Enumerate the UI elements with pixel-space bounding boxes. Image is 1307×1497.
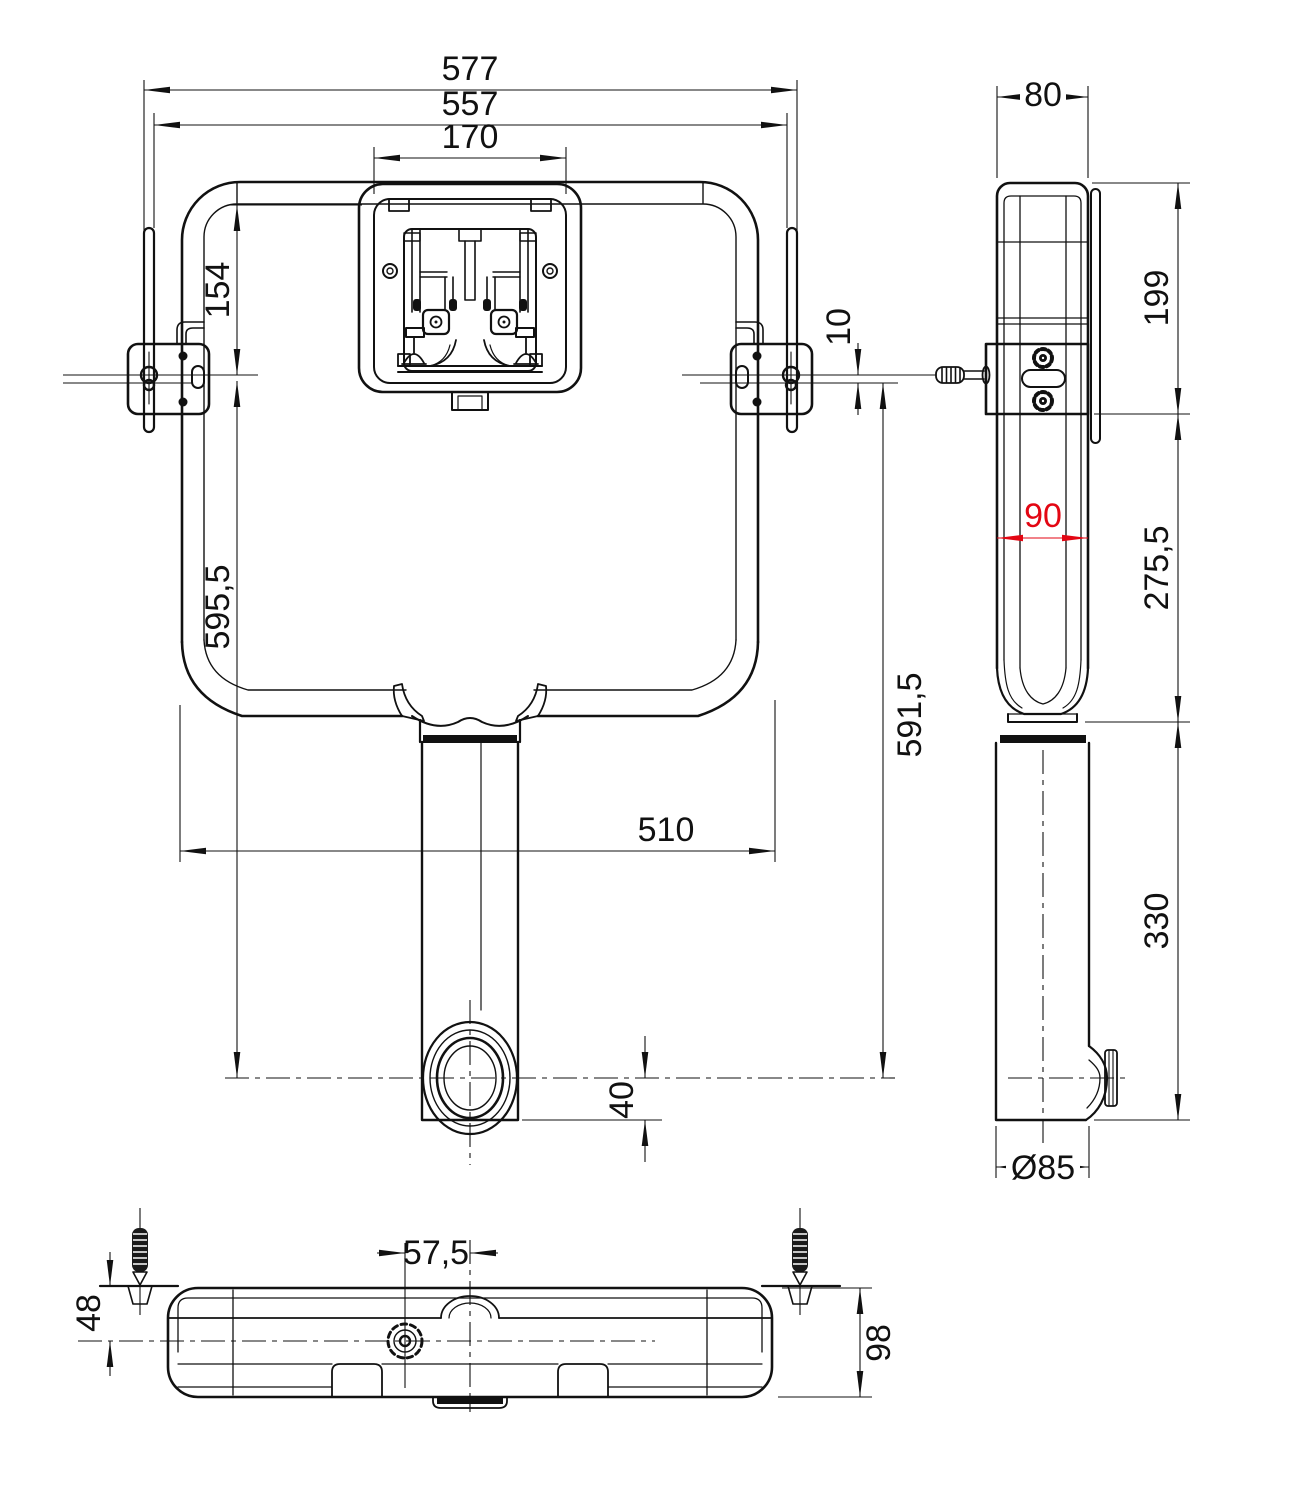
bottom-centerlines — [78, 1240, 655, 1412]
dim-front-panel-width: 170 — [442, 118, 499, 156]
dim-side-depth: 80 — [1024, 76, 1062, 114]
flush-mechanism-left — [402, 229, 457, 366]
front-drain-pipe — [225, 720, 895, 1165]
technical-drawing: 577 557 170 154 595,5 10 591,5 510 40 — [0, 0, 1307, 1497]
flush-mechanism-right — [483, 229, 538, 366]
front-bracket-left — [128, 344, 209, 414]
dim-front-panel-height: 154 — [199, 262, 237, 319]
side-tank-outline — [997, 183, 1100, 722]
front-side-rails — [144, 228, 797, 432]
dim-side-outlet-diameter: Ø85 — [1011, 1149, 1075, 1187]
bottom-view: 57,5 48 98 — [70, 1208, 898, 1412]
hanger-screw-right — [792, 1208, 808, 1315]
dim-front-base-width: 510 — [638, 811, 695, 849]
side-drain-pipe — [996, 735, 1130, 1150]
wall-anchor-bolt — [905, 367, 990, 384]
side-view: 80 199 275,5 330 90 Ø85 — [905, 76, 1190, 1187]
front-axis-lines — [63, 375, 935, 383]
dim-front-height-right: 591,5 — [891, 672, 929, 757]
dim-side-upper-height: 199 — [1138, 270, 1176, 327]
dim-front-height-left: 595,5 — [199, 564, 237, 649]
front-access-panel — [359, 184, 581, 410]
dim-side-recess-depth: 90 — [1024, 497, 1062, 535]
dim-side-mid-height: 275,5 — [1138, 525, 1176, 610]
front-dimensions: 577 557 170 154 595,5 10 591,5 510 40 — [144, 50, 929, 1162]
hanger-screw-left — [132, 1208, 148, 1315]
dim-front-axis-offset: 10 — [820, 308, 858, 346]
front-bracket-right — [731, 344, 812, 414]
bottom-dimensions: 57,5 48 98 — [70, 1234, 898, 1397]
dim-bottom-rear-offset: 48 — [70, 1294, 108, 1332]
dim-front-overall-width: 577 — [442, 50, 499, 88]
front-tank-outline — [182, 182, 758, 726]
dim-side-lower-height: 330 — [1138, 893, 1176, 950]
front-view: 577 557 170 154 595,5 10 591,5 510 40 — [63, 50, 935, 1165]
drawing-canvas: 577 557 170 154 595,5 10 591,5 510 40 — [0, 0, 1307, 1497]
dim-bottom-inlet-offset: 57,5 — [403, 1234, 469, 1272]
dim-front-outlet-drop: 40 — [603, 1081, 641, 1119]
dim-bottom-depth: 98 — [860, 1324, 898, 1362]
